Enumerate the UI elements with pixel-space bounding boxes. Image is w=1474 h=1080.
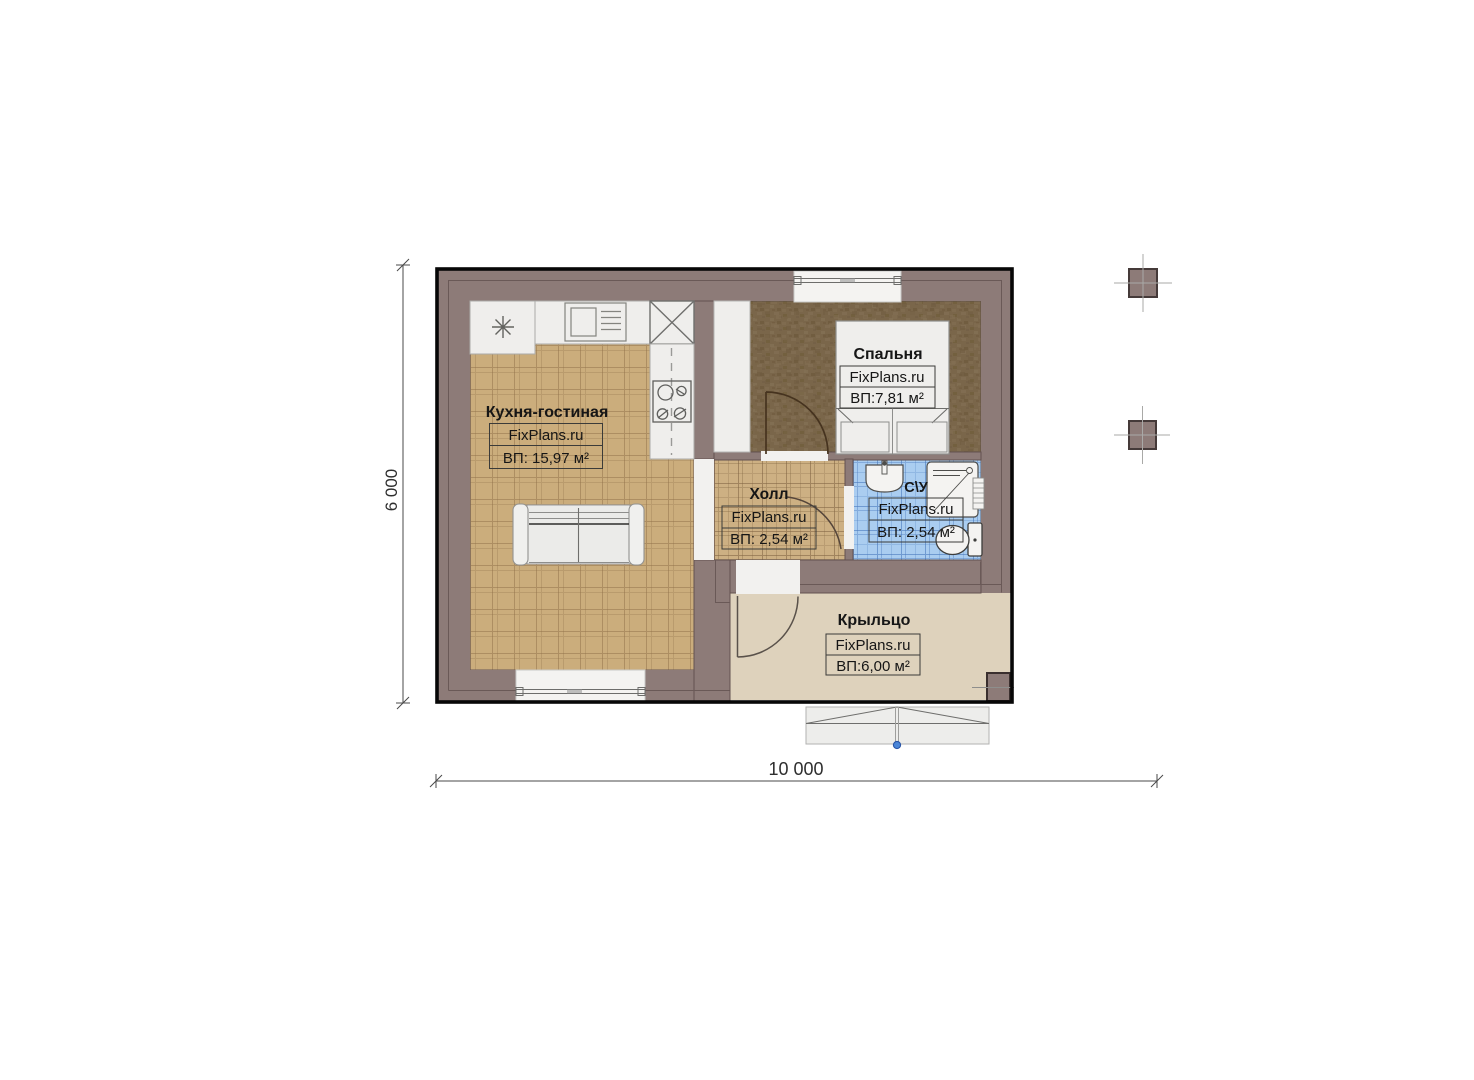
svg-text:Холл: Холл	[750, 486, 789, 503]
svg-text:ВП: 15,97 м²: ВП: 15,97 м²	[503, 450, 589, 467]
svg-text:ВП: 2,54 м²: ВП: 2,54 м²	[877, 524, 955, 541]
svg-text:С\У: С\У	[904, 480, 929, 496]
svg-text:FixPlans.ru: FixPlans.ru	[731, 509, 806, 526]
svg-text:ВП:6,00 м²: ВП:6,00 м²	[836, 658, 910, 675]
svg-text:10 000: 10 000	[768, 759, 823, 779]
svg-text:Спальня: Спальня	[853, 346, 922, 363]
svg-text:FixPlans.ru: FixPlans.ru	[835, 637, 910, 654]
svg-text:ВП: 2,54 м²: ВП: 2,54 м²	[730, 531, 808, 548]
svg-text:FixPlans.ru: FixPlans.ru	[849, 369, 924, 386]
svg-text:FixPlans.ru: FixPlans.ru	[878, 501, 953, 518]
svg-text:ВП:7,81 м²: ВП:7,81 м²	[850, 390, 924, 407]
svg-text:FixPlans.ru: FixPlans.ru	[508, 427, 583, 444]
svg-text:Кухня-гостиная: Кухня-гостиная	[486, 404, 609, 421]
svg-text:Крыльцо: Крыльцо	[838, 612, 911, 629]
svg-text:6 000: 6 000	[382, 469, 401, 512]
